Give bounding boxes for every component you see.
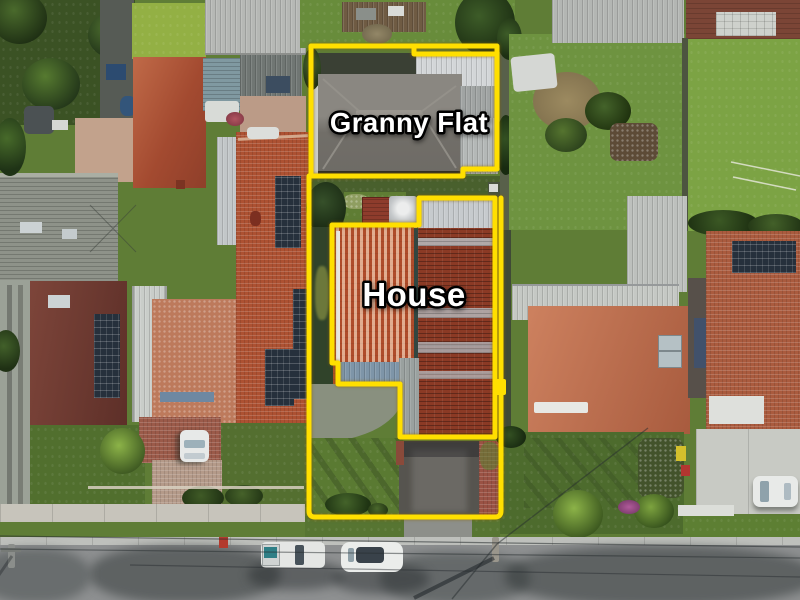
shed-outline-stub [414, 48, 494, 54]
pole-shadows [0, 556, 494, 598]
granny-flat-label: Granny Flat [330, 107, 488, 138]
aerial-photo: Granny Flat House [0, 0, 800, 600]
lawn-white-lines [731, 162, 800, 190]
boundary-marker [496, 379, 506, 395]
clothesline-icon [90, 205, 136, 252]
house-outline [332, 198, 495, 437]
power-lines [0, 428, 800, 599]
annotation-overlay: Granny Flat House [0, 0, 800, 600]
house-label: House [362, 276, 465, 313]
